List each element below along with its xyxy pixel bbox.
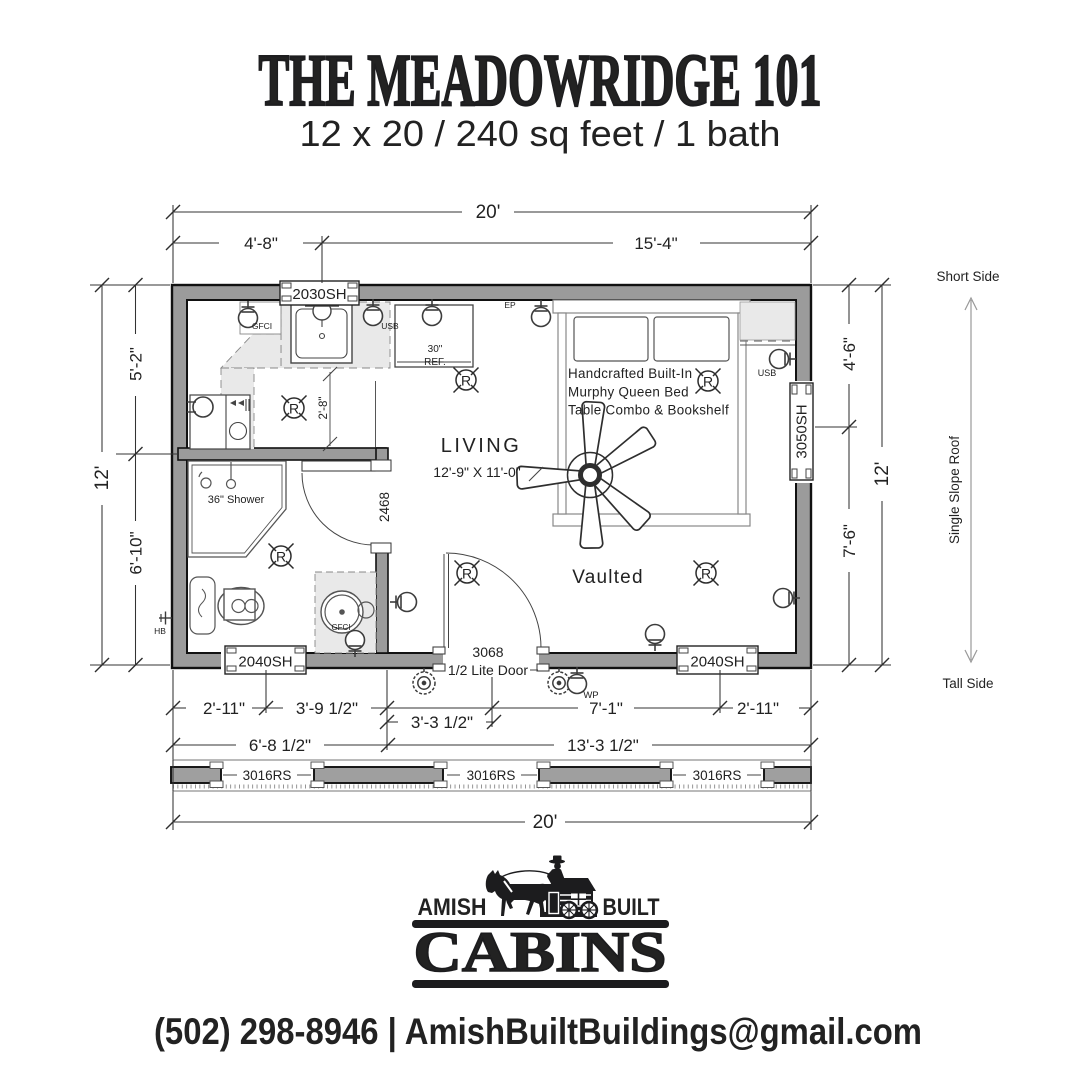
svg-text:Tall Side: Tall Side <box>942 676 993 691</box>
svg-text:2'-8": 2'-8" <box>318 397 330 420</box>
svg-text:2'-11": 2'-11" <box>203 699 245 718</box>
svg-text:2'-11": 2'-11" <box>737 699 779 718</box>
svg-text:BUILT: BUILT <box>603 894 660 921</box>
svg-text:2040SH: 2040SH <box>690 654 744 671</box>
svg-text:12': 12' <box>92 466 113 491</box>
svg-text:4'-6": 4'-6" <box>840 337 859 371</box>
svg-text:3016RS: 3016RS <box>243 768 292 783</box>
svg-text:REF.: REF. <box>424 357 446 368</box>
svg-text:12'-9" X 11'-0": 12'-9" X 11'-0" <box>433 464 520 480</box>
svg-text:2468: 2468 <box>377 492 392 522</box>
svg-text:3'-9 1/2": 3'-9 1/2" <box>296 699 358 718</box>
svg-text:GFCI: GFCI <box>252 321 272 331</box>
svg-text:6'-8 1/2": 6'-8 1/2" <box>249 736 311 755</box>
svg-text:USB: USB <box>381 321 399 331</box>
svg-text:HB: HB <box>154 626 166 636</box>
svg-text:Short Side: Short Side <box>936 269 999 284</box>
svg-text:7'-6": 7'-6" <box>840 524 859 558</box>
svg-text:3050SH: 3050SH <box>794 404 811 458</box>
svg-text:GFCI: GFCI <box>331 623 350 632</box>
svg-text:Table Combo & Bookshelf: Table Combo & Bookshelf <box>568 403 729 418</box>
svg-text:3016RS: 3016RS <box>467 768 516 783</box>
svg-text:6'-10": 6'-10" <box>127 531 146 574</box>
svg-text:2040SH: 2040SH <box>238 654 292 671</box>
svg-text:Handcrafted Built-In: Handcrafted Built-In <box>568 366 692 381</box>
svg-text:30": 30" <box>428 344 443 355</box>
svg-text:20': 20' <box>533 812 558 833</box>
svg-text:7'-1": 7'-1" <box>589 699 623 718</box>
svg-text:LIVING: LIVING <box>441 435 522 457</box>
svg-text:Murphy Queen Bed: Murphy Queen Bed <box>568 385 689 400</box>
svg-text:36" Shower: 36" Shower <box>208 494 265 506</box>
svg-text:13'-3 1/2": 13'-3 1/2" <box>567 736 639 755</box>
svg-text:20': 20' <box>476 202 501 223</box>
svg-text:1/2 Lite Door: 1/2 Lite Door <box>448 662 528 678</box>
svg-text:CABINS: CABINS <box>414 921 667 984</box>
svg-text:15'-4": 15'-4" <box>634 234 677 253</box>
svg-text:(502) 298-8946 | AmishBuiltBui: (502) 298-8946 | AmishBuiltBuildings@gma… <box>154 1011 922 1053</box>
svg-text:EP: EP <box>504 300 516 310</box>
svg-text:THE MEADOWRIDGE 101: THE MEADOWRIDGE 101 <box>259 40 822 122</box>
svg-text:12': 12' <box>872 462 893 487</box>
svg-text:5'-2": 5'-2" <box>127 347 146 381</box>
svg-text:Vaulted: Vaulted <box>572 567 643 588</box>
svg-text:USB: USB <box>758 368 777 378</box>
svg-text:3'-3 1/2": 3'-3 1/2" <box>411 713 473 732</box>
svg-text:Single Slope Roof: Single Slope Roof <box>947 436 962 544</box>
svg-text:3068: 3068 <box>472 644 503 660</box>
svg-text:2030SH: 2030SH <box>292 286 346 303</box>
svg-text:4'-8": 4'-8" <box>244 234 278 253</box>
svg-text:AMISH: AMISH <box>418 894 487 921</box>
svg-text:3016RS: 3016RS <box>693 768 742 783</box>
svg-text:12 x 20 / 240 sq feet / 1 bath: 12 x 20 / 240 sq feet / 1 bath <box>300 113 781 154</box>
